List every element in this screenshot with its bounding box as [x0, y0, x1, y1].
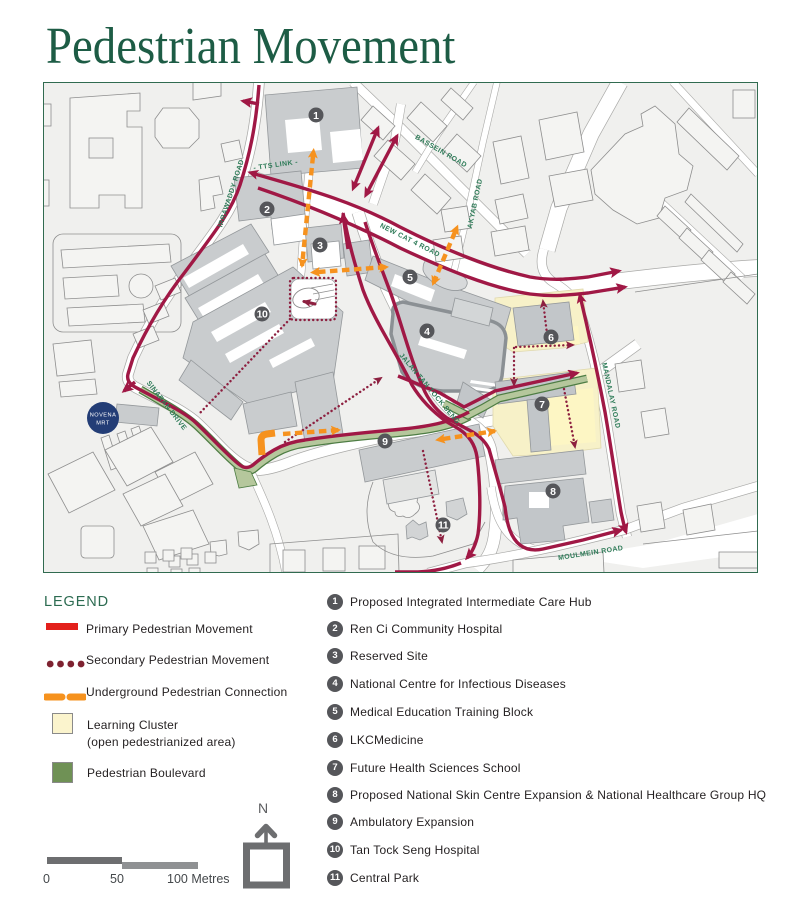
svg-text:7: 7: [539, 399, 545, 411]
svg-text:11: 11: [438, 520, 449, 532]
svg-text:NOVENA: NOVENA: [90, 413, 117, 419]
svg-text:1: 1: [313, 110, 319, 122]
svg-text:2: 2: [264, 204, 270, 216]
svg-text:MRT: MRT: [96, 421, 110, 427]
svg-text:3: 3: [317, 240, 323, 252]
svg-text:6: 6: [548, 332, 554, 344]
svg-text:10: 10: [257, 309, 268, 321]
svg-text:9: 9: [382, 436, 388, 448]
svg-text:4: 4: [424, 326, 430, 338]
svg-text:5: 5: [407, 272, 413, 284]
svg-text:8: 8: [550, 486, 556, 498]
